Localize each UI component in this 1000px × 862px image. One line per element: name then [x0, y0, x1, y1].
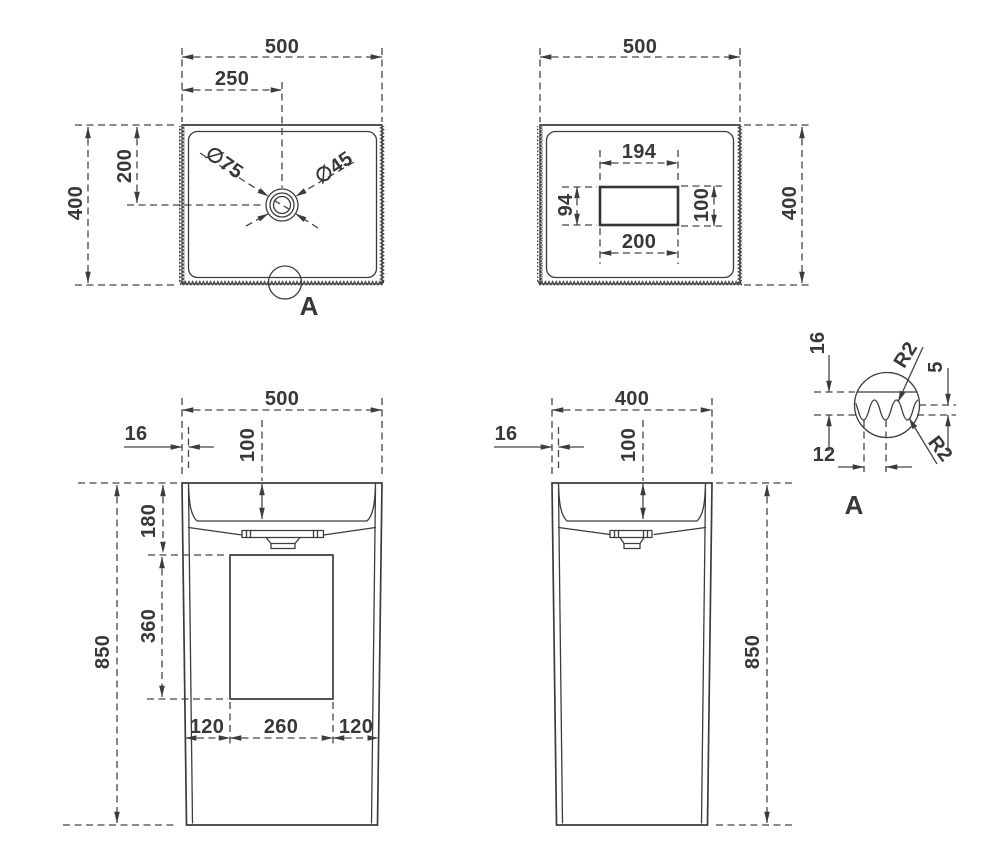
dia45-leader-2: [246, 214, 269, 226]
dim-front-bottom-center: 260: [264, 717, 298, 737]
dim-front-bottom-right: 120: [339, 717, 373, 737]
dim-bottom-width: 500: [623, 37, 657, 57]
dim-front-rim-to-opening: 180: [139, 504, 159, 538]
detail-ref-label: A: [300, 293, 319, 319]
drain-outer-circle: [266, 189, 298, 221]
dim-front-bottom-left: 120: [190, 717, 224, 737]
dim-front-wall: 16: [125, 424, 148, 444]
dim-detail-texture-depth: 5: [926, 361, 946, 372]
dim-side-bowl-depth: 100: [619, 428, 639, 462]
serrated-edge-bottom: [538, 281, 742, 287]
bottom-view: [537, 48, 812, 286]
serrated-edge-right: [738, 126, 744, 283]
dim-bottom-depth: 400: [780, 186, 800, 220]
dim-front-opening-height: 360: [139, 609, 159, 643]
dim-bottom-opening-top: 194: [622, 142, 656, 162]
technical-drawing-page: 500 250 400 200 ∅75 ∅45 A 500 194 200 94…: [0, 0, 1000, 862]
pedestal-opening: [230, 555, 333, 699]
dia75-leader-2: [296, 214, 319, 228]
dim-plan-center-y: 200: [115, 149, 135, 183]
basin-bowl-profile: [559, 484, 706, 521]
serrated-edge-bottom: [180, 281, 384, 287]
dim-plan-center-x: 250: [215, 69, 249, 89]
detail-circle: [855, 373, 920, 438]
dim-front-bowl-depth: 100: [238, 428, 258, 462]
drain-flange: [610, 531, 652, 538]
dim-detail-pitch: 12: [813, 445, 836, 465]
base-opening-rect: [600, 187, 678, 225]
drain-flange: [242, 531, 324, 538]
dim-side-height: 850: [743, 635, 763, 669]
serrated-edge-right: [380, 126, 386, 283]
basin-bowl-profile: [189, 484, 376, 521]
dim-side-wall: 16: [495, 424, 518, 444]
dim-bottom-opening-left: 94: [556, 194, 576, 217]
dim-side-width: 400: [615, 389, 649, 409]
dim-bottom-opening-right: 100: [692, 188, 712, 222]
serrated-edge-left: [537, 126, 543, 283]
dim-plan-width: 500: [265, 37, 299, 57]
dim-plan-depth: 400: [66, 186, 86, 220]
drain-inner-circle: [274, 197, 291, 214]
textured-surface-wave: [847, 400, 924, 420]
side-elevation: [494, 398, 792, 825]
dim-front-width: 500: [265, 389, 299, 409]
detail-title-label: A: [845, 492, 864, 518]
dim-detail-wall: 16: [808, 332, 828, 355]
dim-front-height: 850: [93, 635, 113, 669]
front-elevation: [63, 398, 382, 825]
dim-bottom-opening-bottom: 200: [622, 232, 656, 252]
